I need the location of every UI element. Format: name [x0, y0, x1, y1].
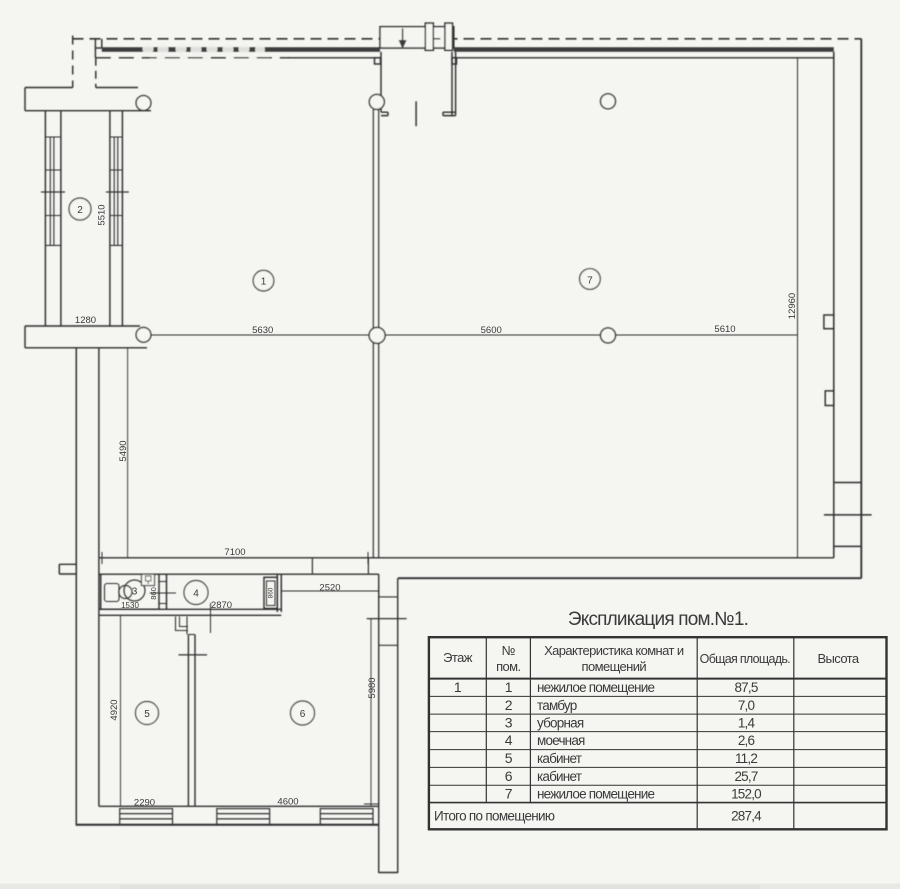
- svg-text:5: 5: [144, 709, 150, 720]
- svg-text:2520: 2520: [319, 583, 340, 594]
- svg-text:1280: 1280: [75, 315, 96, 326]
- svg-text:152,0: 152,0: [731, 786, 761, 801]
- svg-text:1,4: 1,4: [738, 715, 756, 730]
- svg-text:7100: 7100: [224, 547, 245, 558]
- svg-text:2: 2: [505, 697, 513, 713]
- svg-text:3: 3: [505, 714, 513, 730]
- svg-text:7: 7: [505, 785, 513, 801]
- svg-text:Экспликация пом.№1.: Экспликация пом.№1.: [568, 609, 748, 630]
- svg-text:5980: 5980: [367, 677, 378, 698]
- svg-text:3: 3: [132, 587, 138, 598]
- svg-text:6: 6: [505, 768, 513, 784]
- svg-text:4: 4: [505, 732, 513, 748]
- svg-text:11,2: 11,2: [735, 751, 757, 766]
- svg-text:4: 4: [193, 589, 199, 600]
- svg-text:25,7: 25,7: [734, 769, 757, 784]
- svg-text:кабинет: кабинет: [537, 751, 582, 766]
- svg-text:860: 860: [268, 587, 275, 598]
- svg-text:2290: 2290: [134, 798, 155, 809]
- svg-text:5510: 5510: [97, 204, 108, 225]
- svg-text:5490: 5490: [118, 440, 129, 461]
- svg-text:нежилое помещение: нежилое помещение: [537, 786, 654, 801]
- svg-text:7,0: 7,0: [738, 698, 755, 713]
- svg-text:2: 2: [77, 205, 83, 216]
- svg-text:Общая площадь.: Общая площадь.: [700, 652, 790, 666]
- svg-text:нежилое помещение: нежилое помещение: [537, 680, 654, 695]
- svg-text:1: 1: [454, 679, 462, 695]
- svg-text:№: №: [502, 643, 516, 658]
- svg-text:уборная: уборная: [537, 715, 584, 730]
- svg-text:тамбур: тамбур: [537, 698, 577, 713]
- svg-text:4600: 4600: [277, 797, 298, 808]
- svg-text:Высота: Высота: [817, 651, 859, 666]
- svg-text:пом.: пом.: [496, 659, 520, 674]
- svg-text:Итого по помещению: Итого по помещению: [434, 809, 555, 824]
- svg-text:4920: 4920: [109, 699, 120, 720]
- svg-text:Характеристика комнат и: Характеристика комнат и: [544, 643, 684, 658]
- svg-text:5600: 5600: [481, 325, 502, 336]
- svg-text:87,5: 87,5: [734, 680, 757, 695]
- svg-text:1: 1: [505, 679, 513, 695]
- svg-text:2,6: 2,6: [738, 733, 755, 748]
- svg-text:5: 5: [505, 750, 513, 766]
- svg-text:1: 1: [261, 277, 267, 288]
- svg-text:5630: 5630: [252, 325, 273, 336]
- svg-text:860: 860: [149, 587, 158, 600]
- svg-text:12960: 12960: [787, 293, 798, 319]
- svg-text:кабинет: кабинет: [537, 769, 582, 784]
- svg-text:287,4: 287,4: [731, 809, 762, 824]
- svg-text:Этаж: Этаж: [443, 650, 473, 665]
- svg-text:7: 7: [587, 276, 593, 287]
- svg-text:6: 6: [300, 709, 306, 720]
- svg-text:1530: 1530: [121, 601, 139, 610]
- svg-text:2870: 2870: [211, 600, 232, 611]
- svg-text:5610: 5610: [714, 324, 735, 335]
- svg-text:моечная: моечная: [537, 733, 585, 748]
- svg-text:помещений: помещений: [582, 659, 647, 674]
